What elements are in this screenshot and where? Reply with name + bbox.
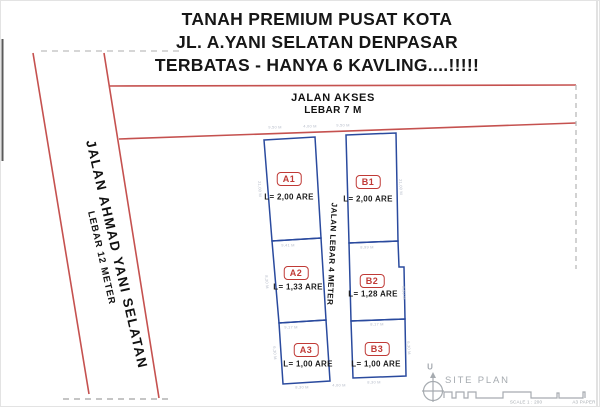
dim-b2-right: 8,50 M — [401, 286, 407, 300]
dim-top-a: 9,50 M — [268, 125, 281, 130]
dim-road-bottom: 4,00 M — [332, 383, 345, 388]
paper-label: A3 PAPER — [572, 400, 595, 405]
dim-b1-right: 21,00 M — [398, 179, 404, 195]
dim-top-road: 4,00 M — [303, 124, 316, 129]
dim-a2-left: 8,20 M — [264, 275, 270, 289]
dim-a3-bottom: 8,30 M — [295, 385, 308, 390]
dim-b3-right: 6,30 M — [406, 341, 412, 355]
plot-area-b1: L= 2,00 ARE — [343, 195, 392, 204]
headline-line-3: TERBATAS - HANYA 6 KAVLING....!!!!! — [35, 54, 599, 77]
headline-line-2: JL. A.YANI SELATAN DENPASAR — [35, 31, 599, 54]
dim-a2-top: 9,41 M — [281, 243, 294, 248]
access-road-width: LEBAR 7 M — [291, 105, 375, 116]
dim-b2-top: 8,99 M — [360, 245, 373, 250]
plot-area-a1: L= 2,00 ARE — [264, 193, 313, 202]
headline: TANAH PREMIUM PUSAT KOTA JL. A.YANI SELA… — [35, 8, 599, 77]
north-label: U — [427, 363, 433, 372]
plot-id-b1: B1 — [356, 175, 381, 189]
plot-id-a2: A2 — [284, 266, 309, 280]
plot-area-a2: L= 1,33 ARE — [273, 283, 322, 292]
north-compass-icon — [422, 372, 444, 402]
plot-outline-a2 — [272, 238, 326, 323]
site-plan-label: SITE PLAN — [445, 375, 510, 386]
access-road-top-edge — [109, 85, 576, 86]
plot-id-b2: B2 — [360, 274, 385, 288]
plot-id-b3: B3 — [365, 342, 390, 356]
scale-bar — [444, 392, 585, 398]
dim-a3-top: 9,17 M — [284, 325, 297, 330]
plot-id-a3: A3 — [294, 343, 319, 357]
dim-a3-left: 6,30 M — [272, 346, 278, 360]
dim-a1-left: 21,00 M — [257, 181, 263, 197]
scale-label: SCALE 1 : 200 — [510, 400, 542, 405]
access-road-label: JALAN AKSES LEBAR 7 M — [291, 92, 375, 116]
plot-id-a1: A1 — [277, 172, 302, 186]
plot-area-a3: L= 1,00 ARE — [283, 360, 332, 369]
headline-line-1: TANAH PREMIUM PUSAT KOTA — [35, 8, 599, 31]
dim-b3-bottom: 8,30 M — [367, 380, 380, 385]
dim-top-b: 9,50 M — [336, 123, 349, 128]
access-road-name: JALAN AKSES — [291, 92, 375, 104]
plot-area-b3: L= 1,00 ARE — [351, 360, 400, 369]
dim-b3-top: 8,17 M — [370, 322, 383, 327]
plot-outline-a1 — [264, 137, 321, 241]
main-road-left-edge — [33, 53, 89, 394]
plot-area-b2: L= 1,28 ARE — [348, 290, 397, 299]
site-plan-canvas: TANAH PREMIUM PUSAT KOTA JL. A.YANI SELA… — [0, 0, 600, 407]
